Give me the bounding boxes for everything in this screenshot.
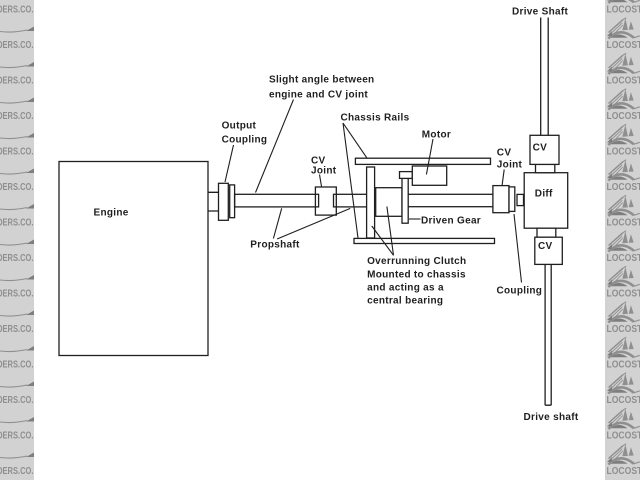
svg-text:LDERS.CO.: LDERS.CO.: [0, 324, 34, 335]
svg-text:LDERS.CO.: LDERS.CO.: [0, 360, 34, 371]
svg-text:Driven Gear: Driven Gear: [421, 216, 481, 227]
svg-text:central bearing: central bearing: [367, 295, 443, 306]
svg-text:Joint: Joint: [311, 166, 337, 177]
svg-text:LDERS.CO.: LDERS.CO.: [0, 253, 34, 264]
svg-text:LOCOSTB: LOCOSTB: [607, 111, 640, 122]
svg-text:Joint: Joint: [497, 160, 523, 171]
svg-text:LOCOSTB: LOCOSTB: [607, 5, 640, 16]
svg-text:LOCOSTB: LOCOSTB: [607, 40, 640, 51]
svg-text:LDERS.CO.: LDERS.CO.: [0, 218, 34, 229]
svg-text:Overrunning Clutch: Overrunning Clutch: [367, 256, 466, 267]
svg-text:engine and CV joint: engine and CV joint: [269, 89, 368, 100]
svg-text:Engine: Engine: [94, 208, 129, 219]
svg-text:LDERS.CO.: LDERS.CO.: [0, 5, 34, 16]
svg-text:LOCOSTB: LOCOSTB: [607, 218, 640, 229]
svg-text:Output: Output: [222, 120, 257, 131]
svg-text:LOCOSTB: LOCOSTB: [607, 76, 640, 87]
svg-text:LDERS.CO.: LDERS.CO.: [0, 40, 34, 51]
svg-text:LDERS.CO.: LDERS.CO.: [0, 111, 34, 122]
svg-text:LOCOSTB: LOCOSTB: [607, 253, 640, 264]
svg-text:Drive Shaft: Drive Shaft: [512, 7, 568, 18]
svg-text:LOCOSTB: LOCOSTB: [607, 147, 640, 158]
svg-text:LOCOSTB: LOCOSTB: [607, 466, 640, 477]
svg-text:LOCOSTB: LOCOSTB: [607, 360, 640, 371]
svg-text:Chassis Rails: Chassis Rails: [341, 113, 410, 124]
svg-text:LDERS.CO.: LDERS.CO.: [0, 395, 34, 406]
svg-text:LDERS.CO.: LDERS.CO.: [0, 182, 34, 193]
svg-text:LOCOSTB: LOCOSTB: [607, 289, 640, 300]
svg-text:LDERS.CO.: LDERS.CO.: [0, 76, 34, 87]
svg-text:Propshaft: Propshaft: [250, 240, 300, 251]
svg-text:and acting as a: and acting as a: [367, 283, 444, 294]
svg-text:Coupling: Coupling: [497, 286, 543, 297]
svg-text:LOCOSTB: LOCOSTB: [607, 431, 640, 442]
svg-text:LDERS.CO.: LDERS.CO.: [0, 147, 34, 158]
svg-text:Slight angle between: Slight angle between: [269, 74, 374, 85]
svg-text:Motor: Motor: [422, 130, 451, 141]
svg-text:CV: CV: [533, 143, 548, 154]
svg-text:Diff: Diff: [535, 189, 553, 200]
svg-text:CV: CV: [538, 241, 553, 252]
svg-text:LOCOSTB: LOCOSTB: [607, 395, 640, 406]
svg-text:CV: CV: [497, 148, 512, 159]
svg-text:LOCOSTB: LOCOSTB: [607, 324, 640, 335]
svg-text:LDERS.CO.: LDERS.CO.: [0, 289, 34, 300]
svg-text:LDERS.CO.: LDERS.CO.: [0, 431, 34, 442]
svg-text:Coupling: Coupling: [222, 134, 268, 145]
svg-text:LDERS.CO.: LDERS.CO.: [0, 466, 34, 477]
svg-text:Mounted to chassis: Mounted to chassis: [367, 269, 466, 280]
svg-text:Drive shaft: Drive shaft: [524, 412, 579, 423]
svg-text:LOCOSTB: LOCOSTB: [607, 182, 640, 193]
